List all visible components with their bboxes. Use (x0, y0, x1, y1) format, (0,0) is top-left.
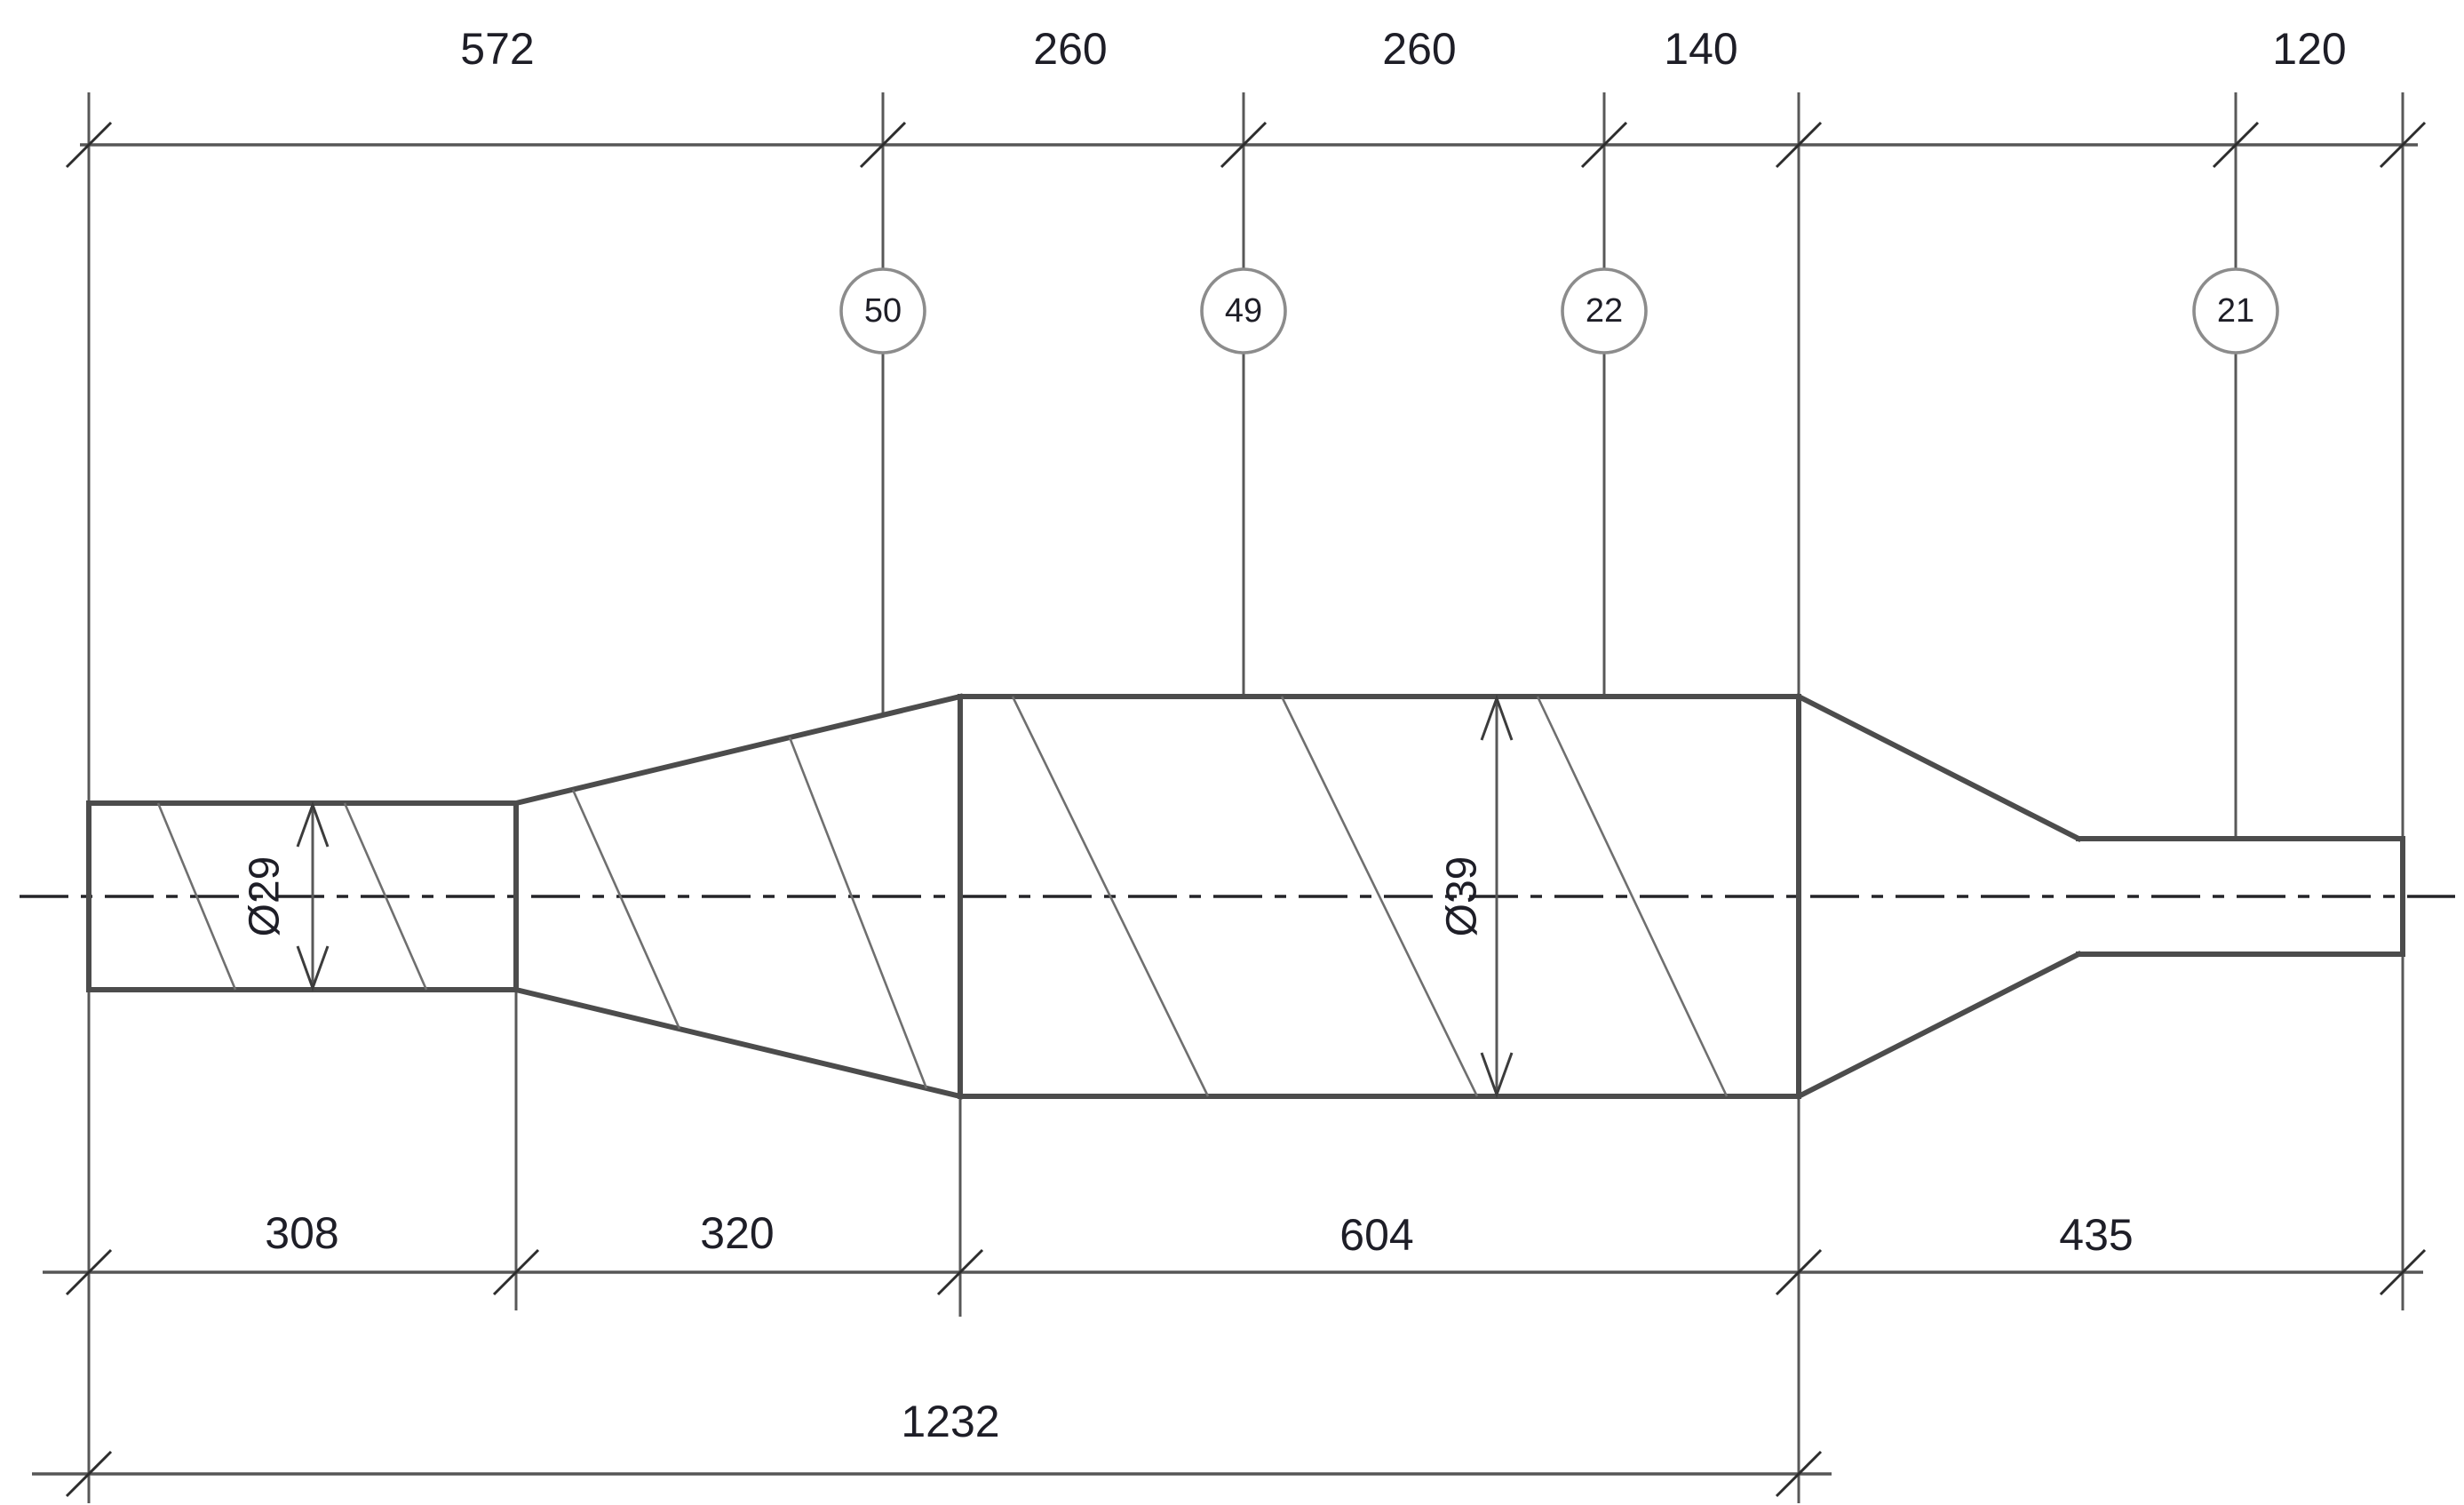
outlet-cone-top-edge (1799, 697, 2079, 839)
callout-49-label: 49 (1225, 292, 1262, 330)
dim-label-1232: 1232 (901, 1397, 999, 1446)
hatch-line (1013, 697, 1208, 1096)
dim-label-260-a: 260 (1033, 24, 1107, 74)
dim-label-572: 572 (460, 24, 534, 74)
callout-50-label: 50 (864, 292, 902, 330)
callout-balloons: 50 49 22 21 (841, 269, 2277, 353)
hatch-line (790, 737, 926, 1088)
inlet-cone-top-edge (516, 697, 960, 803)
outlet-cone-bottom-edge (1799, 954, 2079, 1096)
technical-drawing-page: Ø29 Ø39 50 49 22 21 572 260 260 140 120 (0, 0, 2464, 1505)
hatch-line (573, 790, 680, 1029)
diameter-29-label: Ø29 (242, 856, 289, 937)
diameter-39-label: Ø39 (1439, 856, 1486, 937)
dim-label-435: 435 (2059, 1210, 2133, 1260)
dim-label-604: 604 (1339, 1210, 1413, 1260)
bottom-dimension-labels: 308 320 604 435 1232 (265, 1208, 2133, 1446)
dim-label-308: 308 (265, 1208, 338, 1258)
callout-21-label: 21 (2217, 292, 2254, 330)
technical-drawing: Ø29 Ø39 50 49 22 21 572 260 260 140 120 (0, 0, 2464, 1505)
hatch-line (345, 803, 426, 990)
dim-label-320: 320 (700, 1208, 774, 1258)
dim-label-260-b: 260 (1382, 24, 1456, 74)
callout-22-label: 22 (1586, 292, 1623, 330)
dim-label-140: 140 (1664, 24, 1737, 74)
top-dimension-labels: 572 260 260 140 120 (460, 24, 2346, 74)
dim-label-120: 120 (2272, 24, 2346, 74)
